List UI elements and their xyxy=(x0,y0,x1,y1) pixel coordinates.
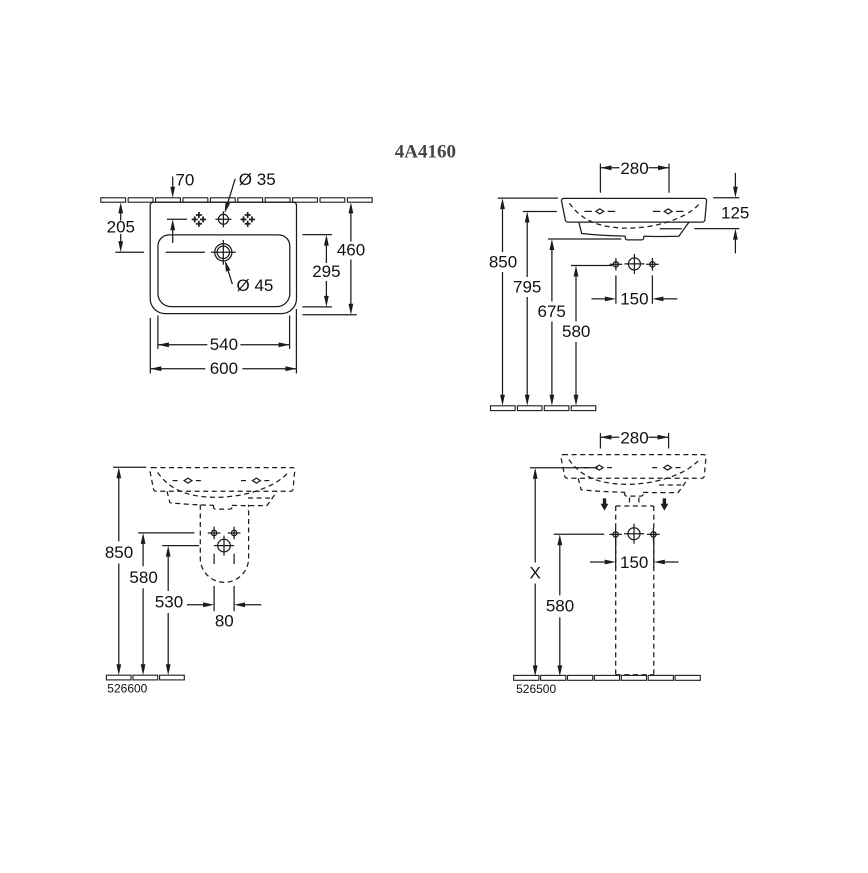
svg-text:526500: 526500 xyxy=(516,682,556,696)
svg-text:795: 795 xyxy=(513,277,541,296)
svg-text:850: 850 xyxy=(105,543,133,562)
svg-text:Ø 35: Ø 35 xyxy=(239,170,276,189)
svg-text:4A4160: 4A4160 xyxy=(395,142,456,163)
svg-text:675: 675 xyxy=(538,302,566,321)
svg-text:460: 460 xyxy=(337,241,365,260)
svg-text:X: X xyxy=(530,564,541,583)
svg-text:580: 580 xyxy=(129,568,157,587)
svg-text:580: 580 xyxy=(546,597,574,616)
svg-text:280: 280 xyxy=(620,159,648,178)
svg-text:540: 540 xyxy=(210,335,238,354)
svg-text:295: 295 xyxy=(312,262,340,281)
svg-text:150: 150 xyxy=(620,290,648,309)
svg-text:70: 70 xyxy=(175,170,194,189)
svg-text:80: 80 xyxy=(215,611,234,630)
svg-text:600: 600 xyxy=(210,359,238,378)
svg-text:850: 850 xyxy=(489,252,517,271)
svg-text:530: 530 xyxy=(155,592,183,611)
svg-text:125: 125 xyxy=(721,204,749,223)
svg-text:Ø 45: Ø 45 xyxy=(237,276,274,295)
svg-text:205: 205 xyxy=(107,217,135,236)
svg-text:526600: 526600 xyxy=(107,682,147,696)
svg-text:580: 580 xyxy=(562,322,590,341)
svg-text:150: 150 xyxy=(620,553,648,572)
svg-text:280: 280 xyxy=(620,428,648,447)
